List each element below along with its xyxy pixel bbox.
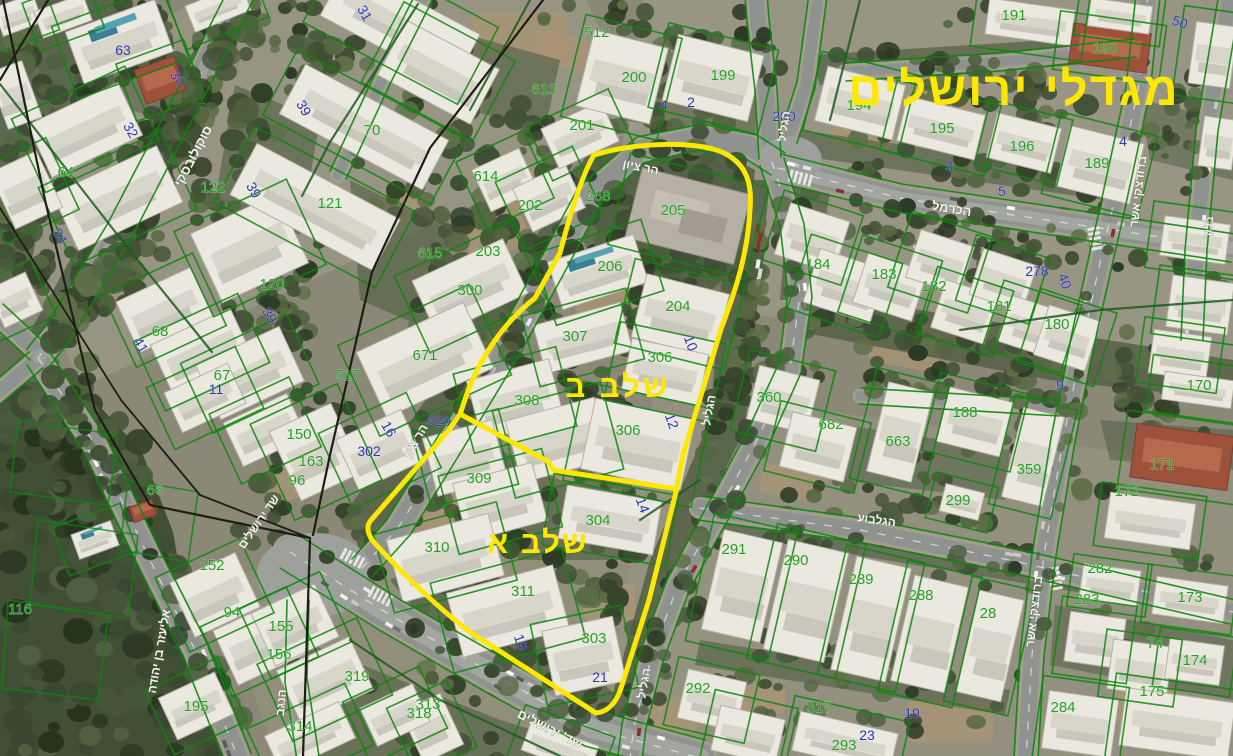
svg-text:278: 278 xyxy=(1025,263,1049,279)
svg-text:173: 173 xyxy=(1177,589,1202,606)
svg-text:306: 306 xyxy=(647,349,672,366)
svg-text:613: 613 xyxy=(531,81,556,98)
svg-text:156: 156 xyxy=(266,646,291,663)
svg-text:189: 189 xyxy=(1084,155,1109,172)
svg-text:291: 291 xyxy=(721,541,746,558)
svg-text:317: 317 xyxy=(806,699,831,716)
svg-text:182: 182 xyxy=(921,278,946,295)
svg-text:9: 9 xyxy=(1056,377,1064,393)
svg-text:188: 188 xyxy=(952,404,977,421)
svg-text:303: 303 xyxy=(581,630,606,647)
svg-text:155: 155 xyxy=(268,618,293,635)
svg-text:66: 66 xyxy=(147,482,164,499)
svg-text:290: 290 xyxy=(783,552,808,569)
svg-text:163: 163 xyxy=(298,453,323,470)
svg-text:171: 171 xyxy=(1149,456,1174,473)
svg-text:174: 174 xyxy=(1182,652,1207,669)
svg-text:309: 309 xyxy=(466,470,491,487)
svg-text:184: 184 xyxy=(805,256,830,273)
svg-text:28: 28 xyxy=(980,605,997,622)
svg-text:150: 150 xyxy=(286,426,311,443)
svg-text:שלב ב: שלב ב xyxy=(565,369,670,404)
svg-text:122: 122 xyxy=(200,179,225,196)
svg-text:70: 70 xyxy=(364,122,381,139)
svg-text:268: 268 xyxy=(585,188,610,205)
svg-text:2: 2 xyxy=(687,94,695,110)
svg-text:306: 306 xyxy=(615,422,640,439)
svg-text:152: 152 xyxy=(199,557,224,574)
svg-text:302: 302 xyxy=(357,443,381,459)
svg-text:284: 284 xyxy=(1050,699,1075,716)
svg-text:172: 172 xyxy=(1114,483,1139,500)
svg-text:318: 318 xyxy=(406,705,431,722)
svg-text:359: 359 xyxy=(1016,461,1041,478)
svg-text:304: 304 xyxy=(585,512,610,529)
svg-text:289: 289 xyxy=(848,571,873,588)
svg-text:196: 196 xyxy=(1009,138,1034,155)
svg-text:615: 615 xyxy=(417,245,442,262)
svg-text:206: 206 xyxy=(597,258,622,275)
svg-text:203: 203 xyxy=(475,243,500,260)
svg-text:121: 121 xyxy=(317,195,342,212)
svg-text:מגדלי ירושלים: מגדלי ירושלים xyxy=(848,62,1179,115)
svg-text:4: 4 xyxy=(1119,133,1127,149)
svg-text:96: 96 xyxy=(289,472,306,489)
svg-text:308: 308 xyxy=(514,392,539,409)
svg-text:663: 663 xyxy=(885,433,910,450)
svg-text:4: 4 xyxy=(660,97,668,113)
svg-text:23: 23 xyxy=(859,727,875,743)
svg-text:671: 671 xyxy=(412,347,437,364)
svg-text:175: 175 xyxy=(1139,683,1164,700)
svg-text:11: 11 xyxy=(209,381,224,397)
svg-text:311: 311 xyxy=(511,583,535,600)
svg-text:19: 19 xyxy=(904,705,920,721)
svg-text:293: 293 xyxy=(831,737,856,754)
svg-text:204: 204 xyxy=(665,298,690,315)
svg-text:180: 180 xyxy=(1044,316,1069,333)
svg-text:שלב א: שלב א xyxy=(487,525,589,560)
svg-text:64: 64 xyxy=(58,164,75,181)
svg-text:5: 5 xyxy=(998,183,1006,199)
svg-text:190: 190 xyxy=(1092,40,1117,57)
svg-text:21: 21 xyxy=(592,669,608,685)
svg-text:3: 3 xyxy=(945,158,953,174)
svg-text:282: 282 xyxy=(1087,560,1112,577)
svg-text:205: 205 xyxy=(660,202,685,219)
svg-text:201: 201 xyxy=(569,117,594,134)
svg-text:614: 614 xyxy=(473,168,498,185)
svg-text:195: 195 xyxy=(183,698,208,715)
svg-text:200: 200 xyxy=(621,69,646,86)
svg-text:288: 288 xyxy=(908,587,933,604)
svg-text:116: 116 xyxy=(8,601,32,618)
svg-text:310: 310 xyxy=(424,539,449,556)
svg-text:512: 512 xyxy=(584,24,609,41)
svg-text:320: 320 xyxy=(427,413,451,429)
svg-text:299: 299 xyxy=(945,492,970,509)
svg-text:195: 195 xyxy=(929,120,954,137)
svg-text:682: 682 xyxy=(818,416,843,433)
svg-text:63: 63 xyxy=(115,42,131,58)
svg-text:300: 300 xyxy=(457,282,482,299)
svg-text:68: 68 xyxy=(152,323,169,340)
svg-text:74: 74 xyxy=(1147,635,1164,652)
svg-text:94: 94 xyxy=(224,604,241,621)
svg-text:181: 181 xyxy=(986,298,1011,315)
svg-text:314: 314 xyxy=(287,718,312,735)
svg-text:307: 307 xyxy=(562,328,587,345)
svg-text:הנגב: הנגב xyxy=(273,689,289,717)
svg-text:517: 517 xyxy=(335,367,360,384)
svg-text:170: 170 xyxy=(1186,377,1211,394)
svg-text:283: 283 xyxy=(1074,591,1099,608)
svg-text:292: 292 xyxy=(685,680,710,697)
svg-text:319: 319 xyxy=(344,668,369,685)
svg-text:360: 360 xyxy=(756,389,781,406)
svg-text:202: 202 xyxy=(517,197,542,214)
svg-text:183: 183 xyxy=(871,266,896,283)
svg-text:בלוך: בלוך xyxy=(1201,215,1217,239)
svg-text:199: 199 xyxy=(710,67,735,84)
svg-text:191: 191 xyxy=(1001,7,1026,24)
svg-text:120: 120 xyxy=(259,276,284,293)
